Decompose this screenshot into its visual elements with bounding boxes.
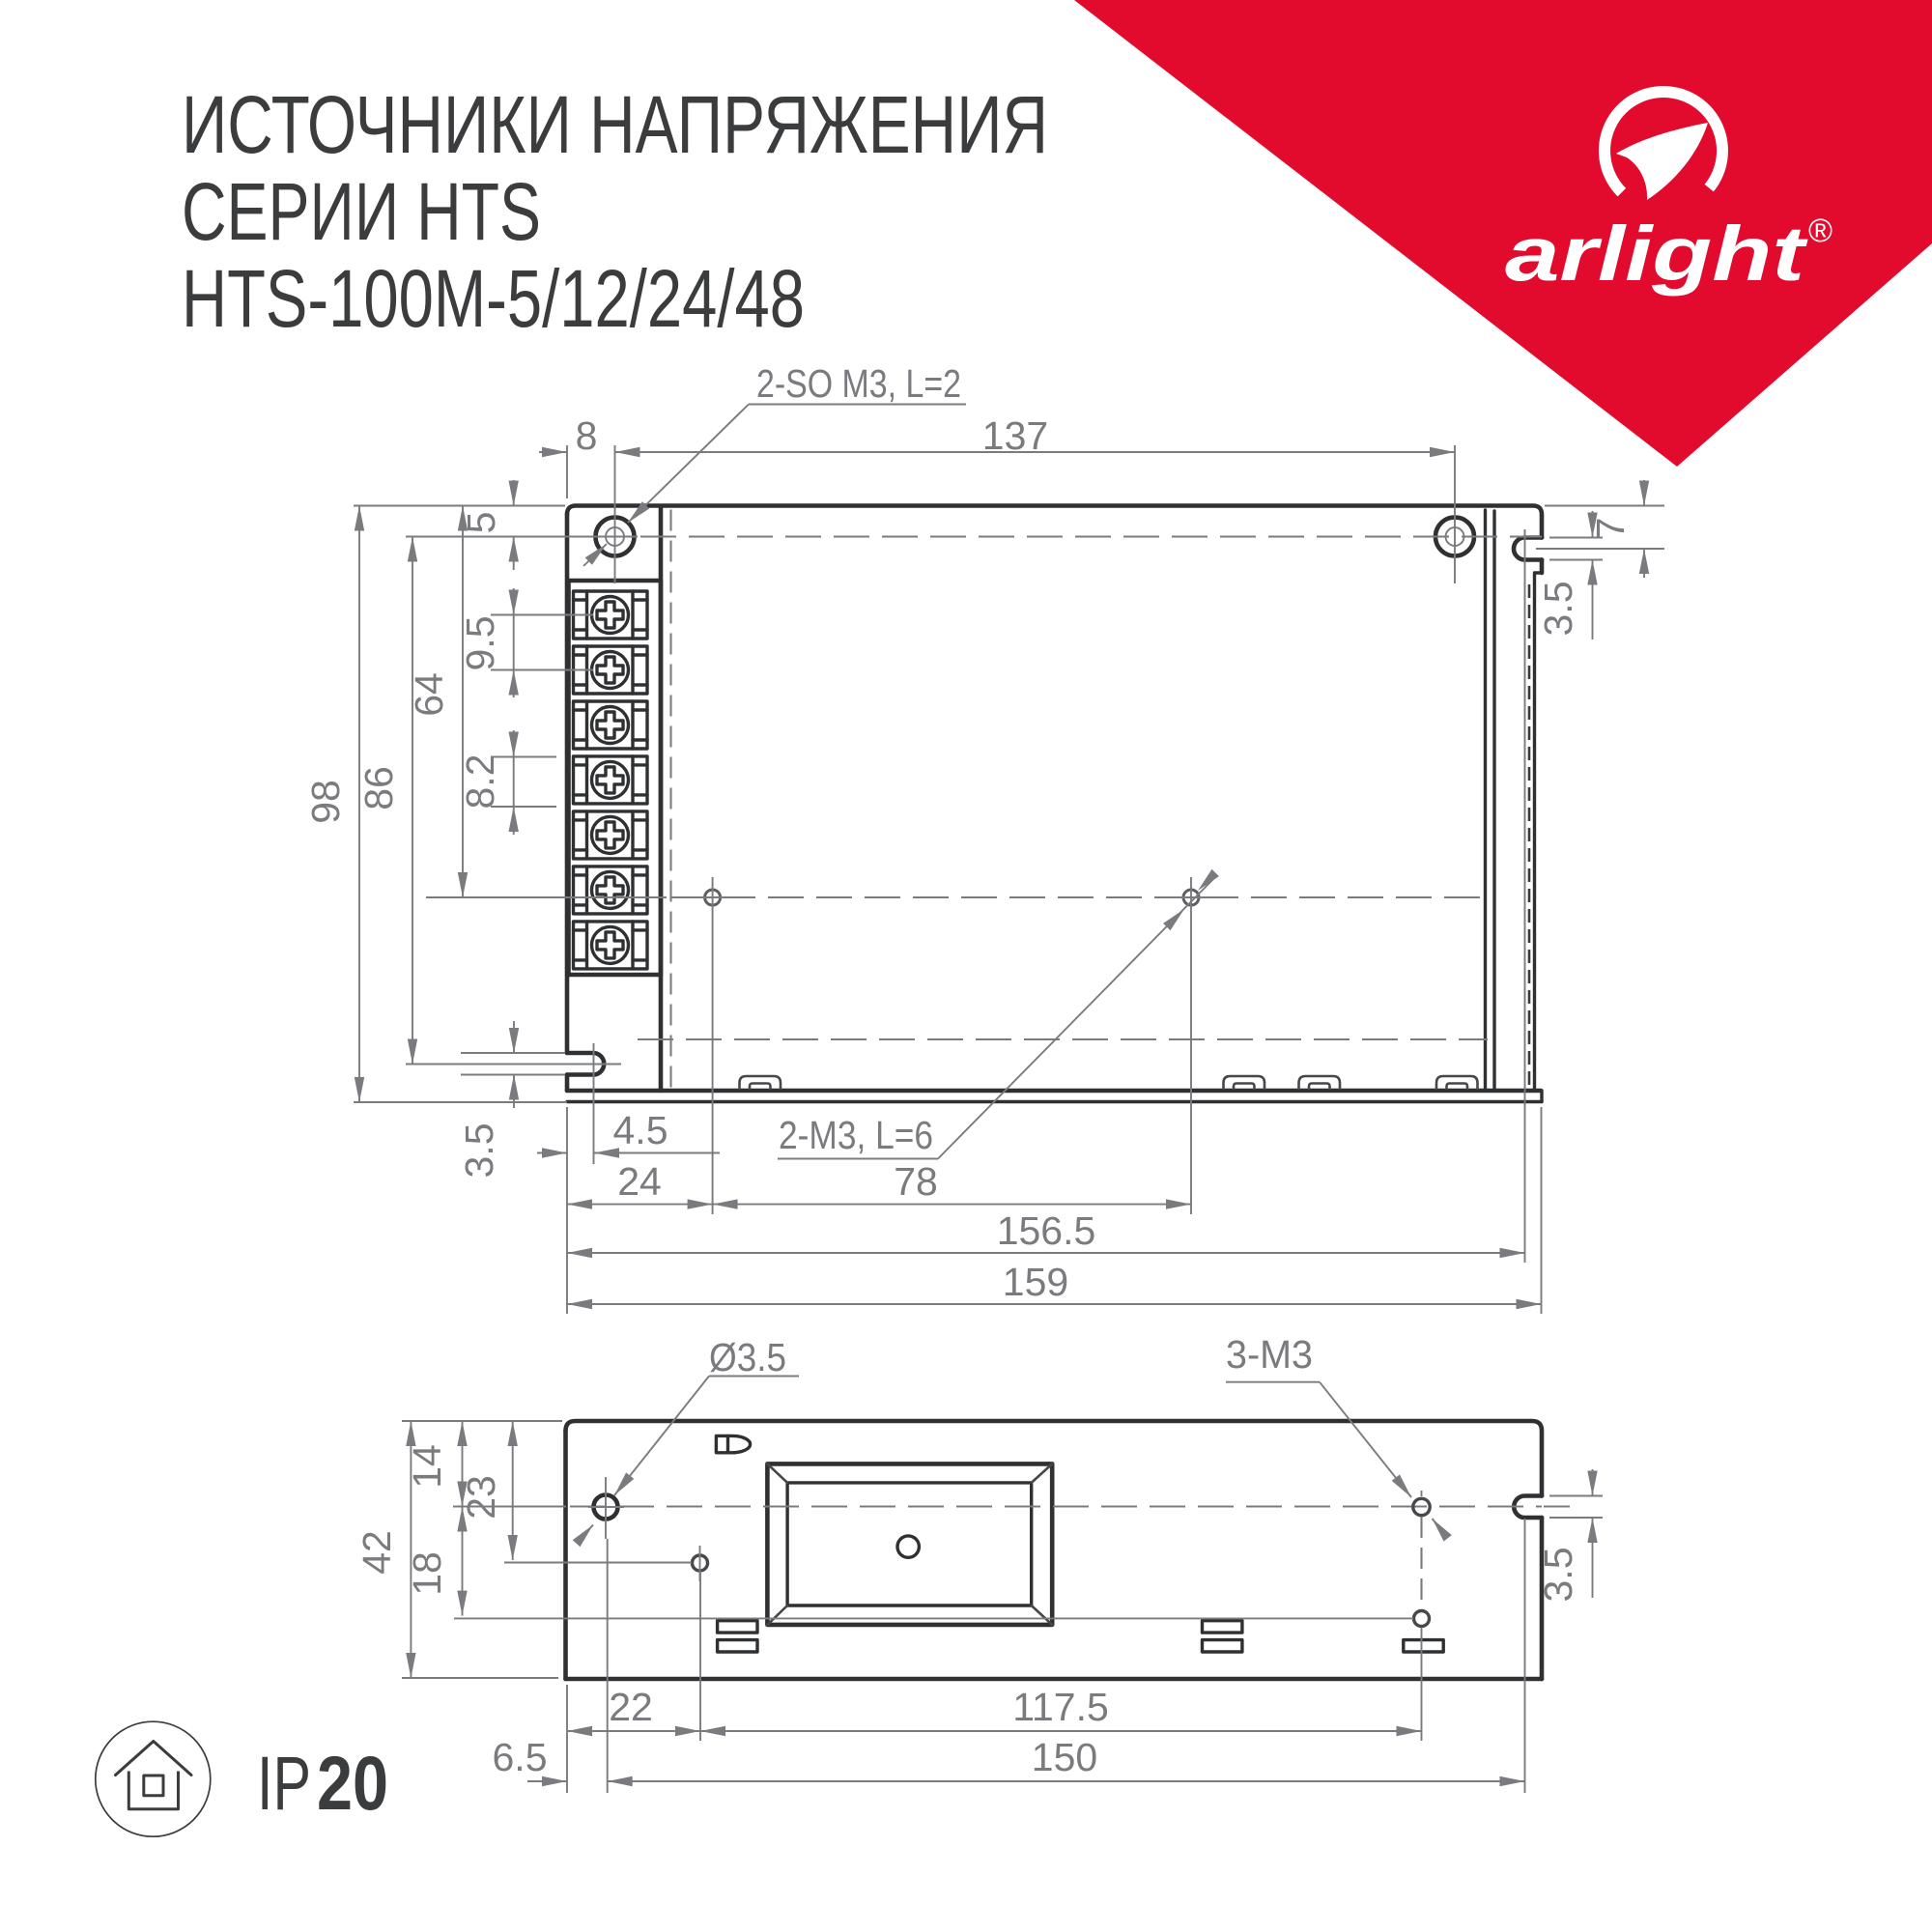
svg-text:IP: IP — [257, 1740, 311, 1826]
svg-text:9.5: 9.5 — [458, 616, 502, 671]
svg-text:3.5: 3.5 — [457, 1123, 501, 1179]
svg-text:137: 137 — [982, 413, 1048, 458]
svg-text:3.5: 3.5 — [1536, 1548, 1580, 1603]
svg-text:156.5: 156.5 — [997, 1208, 1096, 1253]
svg-text:18: 18 — [405, 1551, 449, 1596]
svg-text:arlight: arlight — [1505, 211, 1808, 297]
svg-text:98: 98 — [303, 780, 348, 824]
svg-text:Ø3.5: Ø3.5 — [709, 1335, 786, 1379]
svg-text:23: 23 — [459, 1475, 503, 1520]
svg-text:HTS-100M-5/12/24/48: HTS-100M-5/12/24/48 — [182, 253, 805, 344]
svg-text:64: 64 — [407, 672, 451, 717]
svg-text:42: 42 — [355, 1530, 399, 1575]
svg-text:117.5: 117.5 — [1012, 1685, 1109, 1729]
svg-text:2-M3, L=6: 2-M3, L=6 — [779, 1113, 933, 1157]
svg-text:78: 78 — [894, 1159, 938, 1204]
svg-text:3.5: 3.5 — [1536, 582, 1580, 637]
svg-text:2-SO M3, L=2: 2-SO M3, L=2 — [756, 361, 961, 406]
svg-text:ИСТОЧНИКИ НАПРЯЖЕНИЯ: ИСТОЧНИКИ НАПРЯЖЕНИЯ — [182, 79, 1048, 170]
svg-text:4.5: 4.5 — [613, 1108, 668, 1152]
svg-text:20: 20 — [317, 1740, 388, 1826]
svg-text:22: 22 — [609, 1685, 653, 1729]
svg-text:®: ® — [1808, 213, 1833, 249]
svg-text:5: 5 — [459, 512, 503, 534]
svg-text:6.5: 6.5 — [493, 1735, 548, 1779]
svg-text:86: 86 — [356, 766, 401, 810]
svg-text:150: 150 — [1032, 1735, 1097, 1779]
svg-text:3-M3: 3-M3 — [1226, 1332, 1313, 1377]
svg-text:24: 24 — [617, 1159, 662, 1204]
svg-text:14: 14 — [405, 1444, 449, 1489]
svg-text:8.2: 8.2 — [458, 754, 502, 810]
svg-text:8: 8 — [576, 413, 598, 458]
svg-text:СЕРИИ HTS: СЕРИИ HTS — [182, 166, 541, 257]
svg-text:159: 159 — [1003, 1260, 1068, 1304]
